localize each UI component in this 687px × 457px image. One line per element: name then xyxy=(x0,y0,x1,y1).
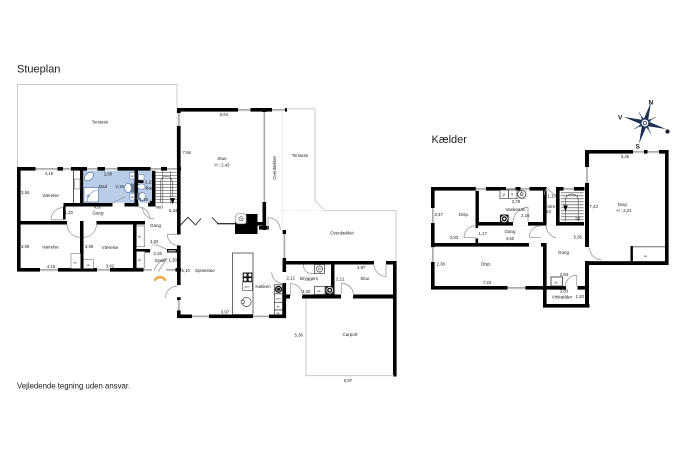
svg-text:1,19: 1,19 xyxy=(140,197,149,202)
svg-text:7,23: 7,23 xyxy=(483,280,492,285)
svg-text:Vaskerum: Vaskerum xyxy=(506,207,526,212)
svg-text:3,47: 3,47 xyxy=(435,212,444,217)
svg-text:N: N xyxy=(649,100,654,107)
svg-text:1,10: 1,10 xyxy=(548,194,557,199)
svg-text:Kælder: Kælder xyxy=(432,134,468,146)
svg-text:T: T xyxy=(511,192,514,197)
svg-text:sk: sk xyxy=(644,254,648,258)
svg-text:V: V xyxy=(502,192,505,197)
svg-text:Stueplan: Stueplan xyxy=(17,64,60,76)
svg-text:1,23: 1,23 xyxy=(543,209,552,214)
svg-text:Disp.: Disp. xyxy=(618,202,628,207)
svg-text:Vejledende tegning uden ansvar: Vejledende tegning uden ansvar. xyxy=(17,382,130,391)
svg-text:1,17: 1,17 xyxy=(479,231,488,236)
svg-text:3,08: 3,08 xyxy=(85,244,94,249)
svg-text:Overdækket: Overdækket xyxy=(330,231,354,236)
svg-text:H : 2,21: H : 2,21 xyxy=(616,208,632,213)
svg-text:Skur: Skur xyxy=(360,276,370,281)
svg-text:sk: sk xyxy=(131,195,135,199)
svg-text:Bad: Bad xyxy=(99,184,108,189)
svg-text:Disp.: Disp. xyxy=(459,212,469,217)
svg-text:sk: sk xyxy=(87,263,91,267)
svg-text:Entre: Entre xyxy=(155,258,166,263)
svg-text:ovn: ovn xyxy=(276,297,281,301)
svg-text:3,97: 3,97 xyxy=(357,265,366,270)
svg-text:Terrasse: Terrasse xyxy=(292,153,309,158)
svg-text:Gang: Gang xyxy=(504,229,516,234)
svg-text:Bad: Bad xyxy=(146,185,155,190)
svg-text:H : 2,43: H : 2,43 xyxy=(214,163,230,168)
svg-text:6,97: 6,97 xyxy=(221,310,230,315)
svg-text:Værelse: Værelse xyxy=(42,193,59,198)
svg-text:sk: sk xyxy=(555,281,559,285)
svg-text:5,97: 5,97 xyxy=(344,378,353,383)
svg-text:2,83: 2,83 xyxy=(560,288,569,293)
svg-text:3,56: 3,56 xyxy=(21,190,30,195)
svg-text:Terrasse: Terrasse xyxy=(92,120,109,125)
svg-text:3,30: 3,30 xyxy=(302,289,311,294)
svg-text:sk: sk xyxy=(277,311,281,315)
svg-text:4,67: 4,67 xyxy=(94,204,103,209)
svg-text:sk: sk xyxy=(131,174,135,178)
svg-text:2,12: 2,12 xyxy=(287,276,296,281)
svg-text:2,83: 2,83 xyxy=(450,235,459,240)
svg-text:7,56: 7,56 xyxy=(183,150,192,155)
svg-text:Køkken: Køkken xyxy=(255,284,271,289)
svg-text:4,16: 4,16 xyxy=(47,264,56,269)
svg-text:sk: sk xyxy=(138,258,142,262)
svg-text:Værelse: Værelse xyxy=(42,245,59,250)
svg-text:4,15: 4,15 xyxy=(45,171,54,176)
svg-text:op: op xyxy=(576,216,581,221)
svg-text:2,79: 2,79 xyxy=(512,199,521,204)
svg-text:3,08: 3,08 xyxy=(21,244,30,249)
svg-text:sk: sk xyxy=(74,261,78,265)
svg-text:2,80: 2,80 xyxy=(104,172,113,177)
svg-text:Stue: Stue xyxy=(217,156,227,161)
svg-text:opv: opv xyxy=(245,285,250,289)
svg-text:3,42: 3,42 xyxy=(106,263,115,268)
svg-text:2,12: 2,12 xyxy=(336,277,345,282)
svg-text:ned: ned xyxy=(156,204,164,209)
svg-text:7,43: 7,43 xyxy=(590,204,599,209)
svg-text:6,10: 6,10 xyxy=(182,268,191,273)
svg-text:5,34: 5,34 xyxy=(169,208,178,213)
svg-text:Bryggers: Bryggers xyxy=(300,276,319,281)
svg-text:2,38: 2,38 xyxy=(437,262,446,267)
svg-text:Gang: Gang xyxy=(150,223,162,228)
svg-text:S: S xyxy=(636,144,641,151)
svg-text:4,50: 4,50 xyxy=(506,236,515,241)
svg-text:5,36: 5,36 xyxy=(574,235,583,240)
svg-text:Gang: Gang xyxy=(92,211,104,216)
svg-text:2,21: 2,21 xyxy=(145,180,154,185)
svg-text:Spisestue: Spisestue xyxy=(195,268,215,273)
svg-text:sk: sk xyxy=(277,305,281,309)
svg-text:5,45: 5,45 xyxy=(621,154,630,159)
svg-text:Værelse: Værelse xyxy=(102,245,119,250)
svg-text:2,26: 2,26 xyxy=(154,251,163,256)
svg-text:1,20: 1,20 xyxy=(65,210,74,215)
svg-text:Vinkælder: Vinkælder xyxy=(552,294,573,299)
svg-text:sk: sk xyxy=(318,289,322,293)
svg-text:2,16: 2,16 xyxy=(521,213,530,218)
svg-text:2,83: 2,83 xyxy=(560,272,569,277)
svg-text:Disp.: Disp. xyxy=(481,262,491,267)
svg-text:2,19: 2,19 xyxy=(116,184,125,189)
svg-text:5,64: 5,64 xyxy=(220,112,229,117)
svg-text:5,36: 5,36 xyxy=(295,333,304,338)
svg-text:V: V xyxy=(618,115,623,122)
svg-text:3,02: 3,02 xyxy=(150,239,159,244)
svg-text:1,30: 1,30 xyxy=(169,258,178,263)
svg-text:Gang: Gang xyxy=(558,250,570,255)
svg-text:sk: sk xyxy=(138,235,142,239)
svg-text:1,20: 1,20 xyxy=(576,294,585,299)
svg-text:Overdækket: Overdækket xyxy=(272,155,277,179)
svg-text:Carport: Carport xyxy=(342,332,358,337)
